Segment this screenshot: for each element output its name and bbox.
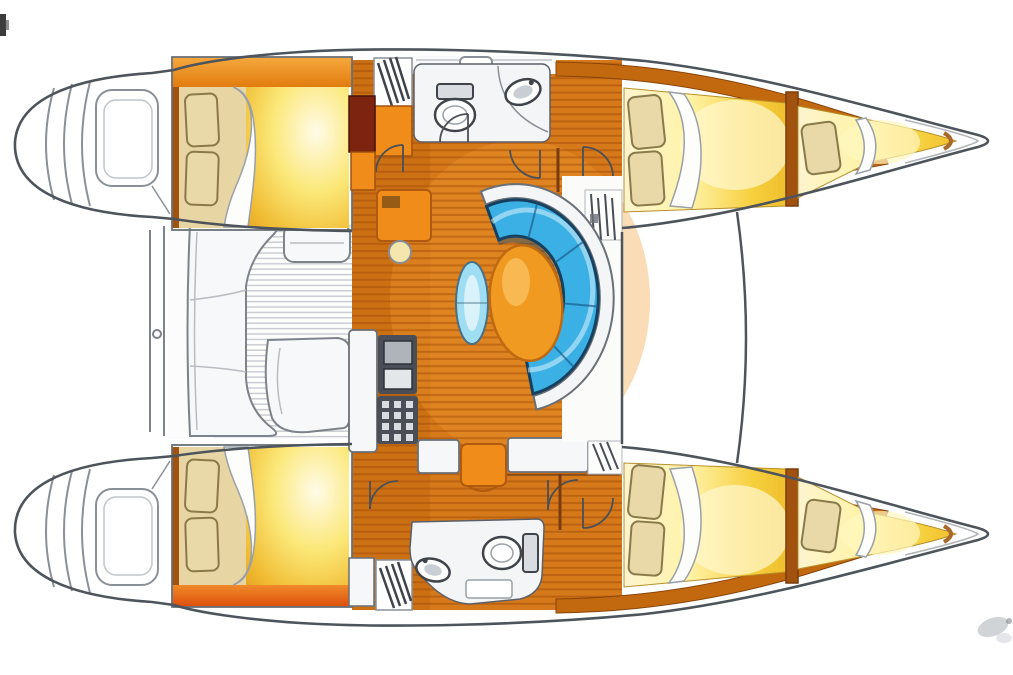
mattress <box>246 87 349 228</box>
pillow <box>185 151 219 205</box>
shower-tray <box>466 580 512 598</box>
instrument <box>382 196 400 208</box>
locker <box>351 152 375 190</box>
pillow <box>628 521 665 576</box>
pillow <box>627 94 665 149</box>
bulkhead <box>786 92 798 206</box>
toilet-bowl <box>483 537 521 569</box>
wardrobe <box>349 96 375 152</box>
nav-stool <box>389 241 411 263</box>
bulkhead <box>786 469 798 583</box>
stbd-aft-cabin <box>172 445 352 607</box>
cabin-footboard <box>172 585 352 607</box>
pillow <box>185 517 219 571</box>
port-companionway <box>374 57 412 172</box>
counter <box>508 438 588 472</box>
mattress <box>246 447 349 585</box>
catamaran-floorplan-page <box>0 0 1013 675</box>
toilet-tank <box>437 84 473 99</box>
cockpit-seat-fwd-stbd <box>266 338 350 432</box>
pillow <box>801 499 842 553</box>
toilet-tank <box>523 534 538 572</box>
pillow <box>185 93 220 147</box>
counter <box>418 440 459 473</box>
toilet-bowl <box>435 99 475 131</box>
hull-cabinet <box>375 106 412 156</box>
mast-step-fwd <box>588 441 622 474</box>
port-head <box>414 64 550 142</box>
galley-counter <box>349 330 377 452</box>
pillow <box>627 464 665 519</box>
pillow <box>801 121 842 175</box>
pillow <box>628 151 665 206</box>
companionway-step <box>461 444 506 486</box>
cockpit <box>150 221 352 439</box>
forward-beam <box>737 212 746 463</box>
cabin-headboard <box>172 57 352 87</box>
port-aft-cabin <box>172 57 352 230</box>
counter <box>349 558 374 606</box>
cleat <box>153 330 161 338</box>
pillow <box>185 459 220 513</box>
floorplan-canvas <box>0 0 1013 675</box>
